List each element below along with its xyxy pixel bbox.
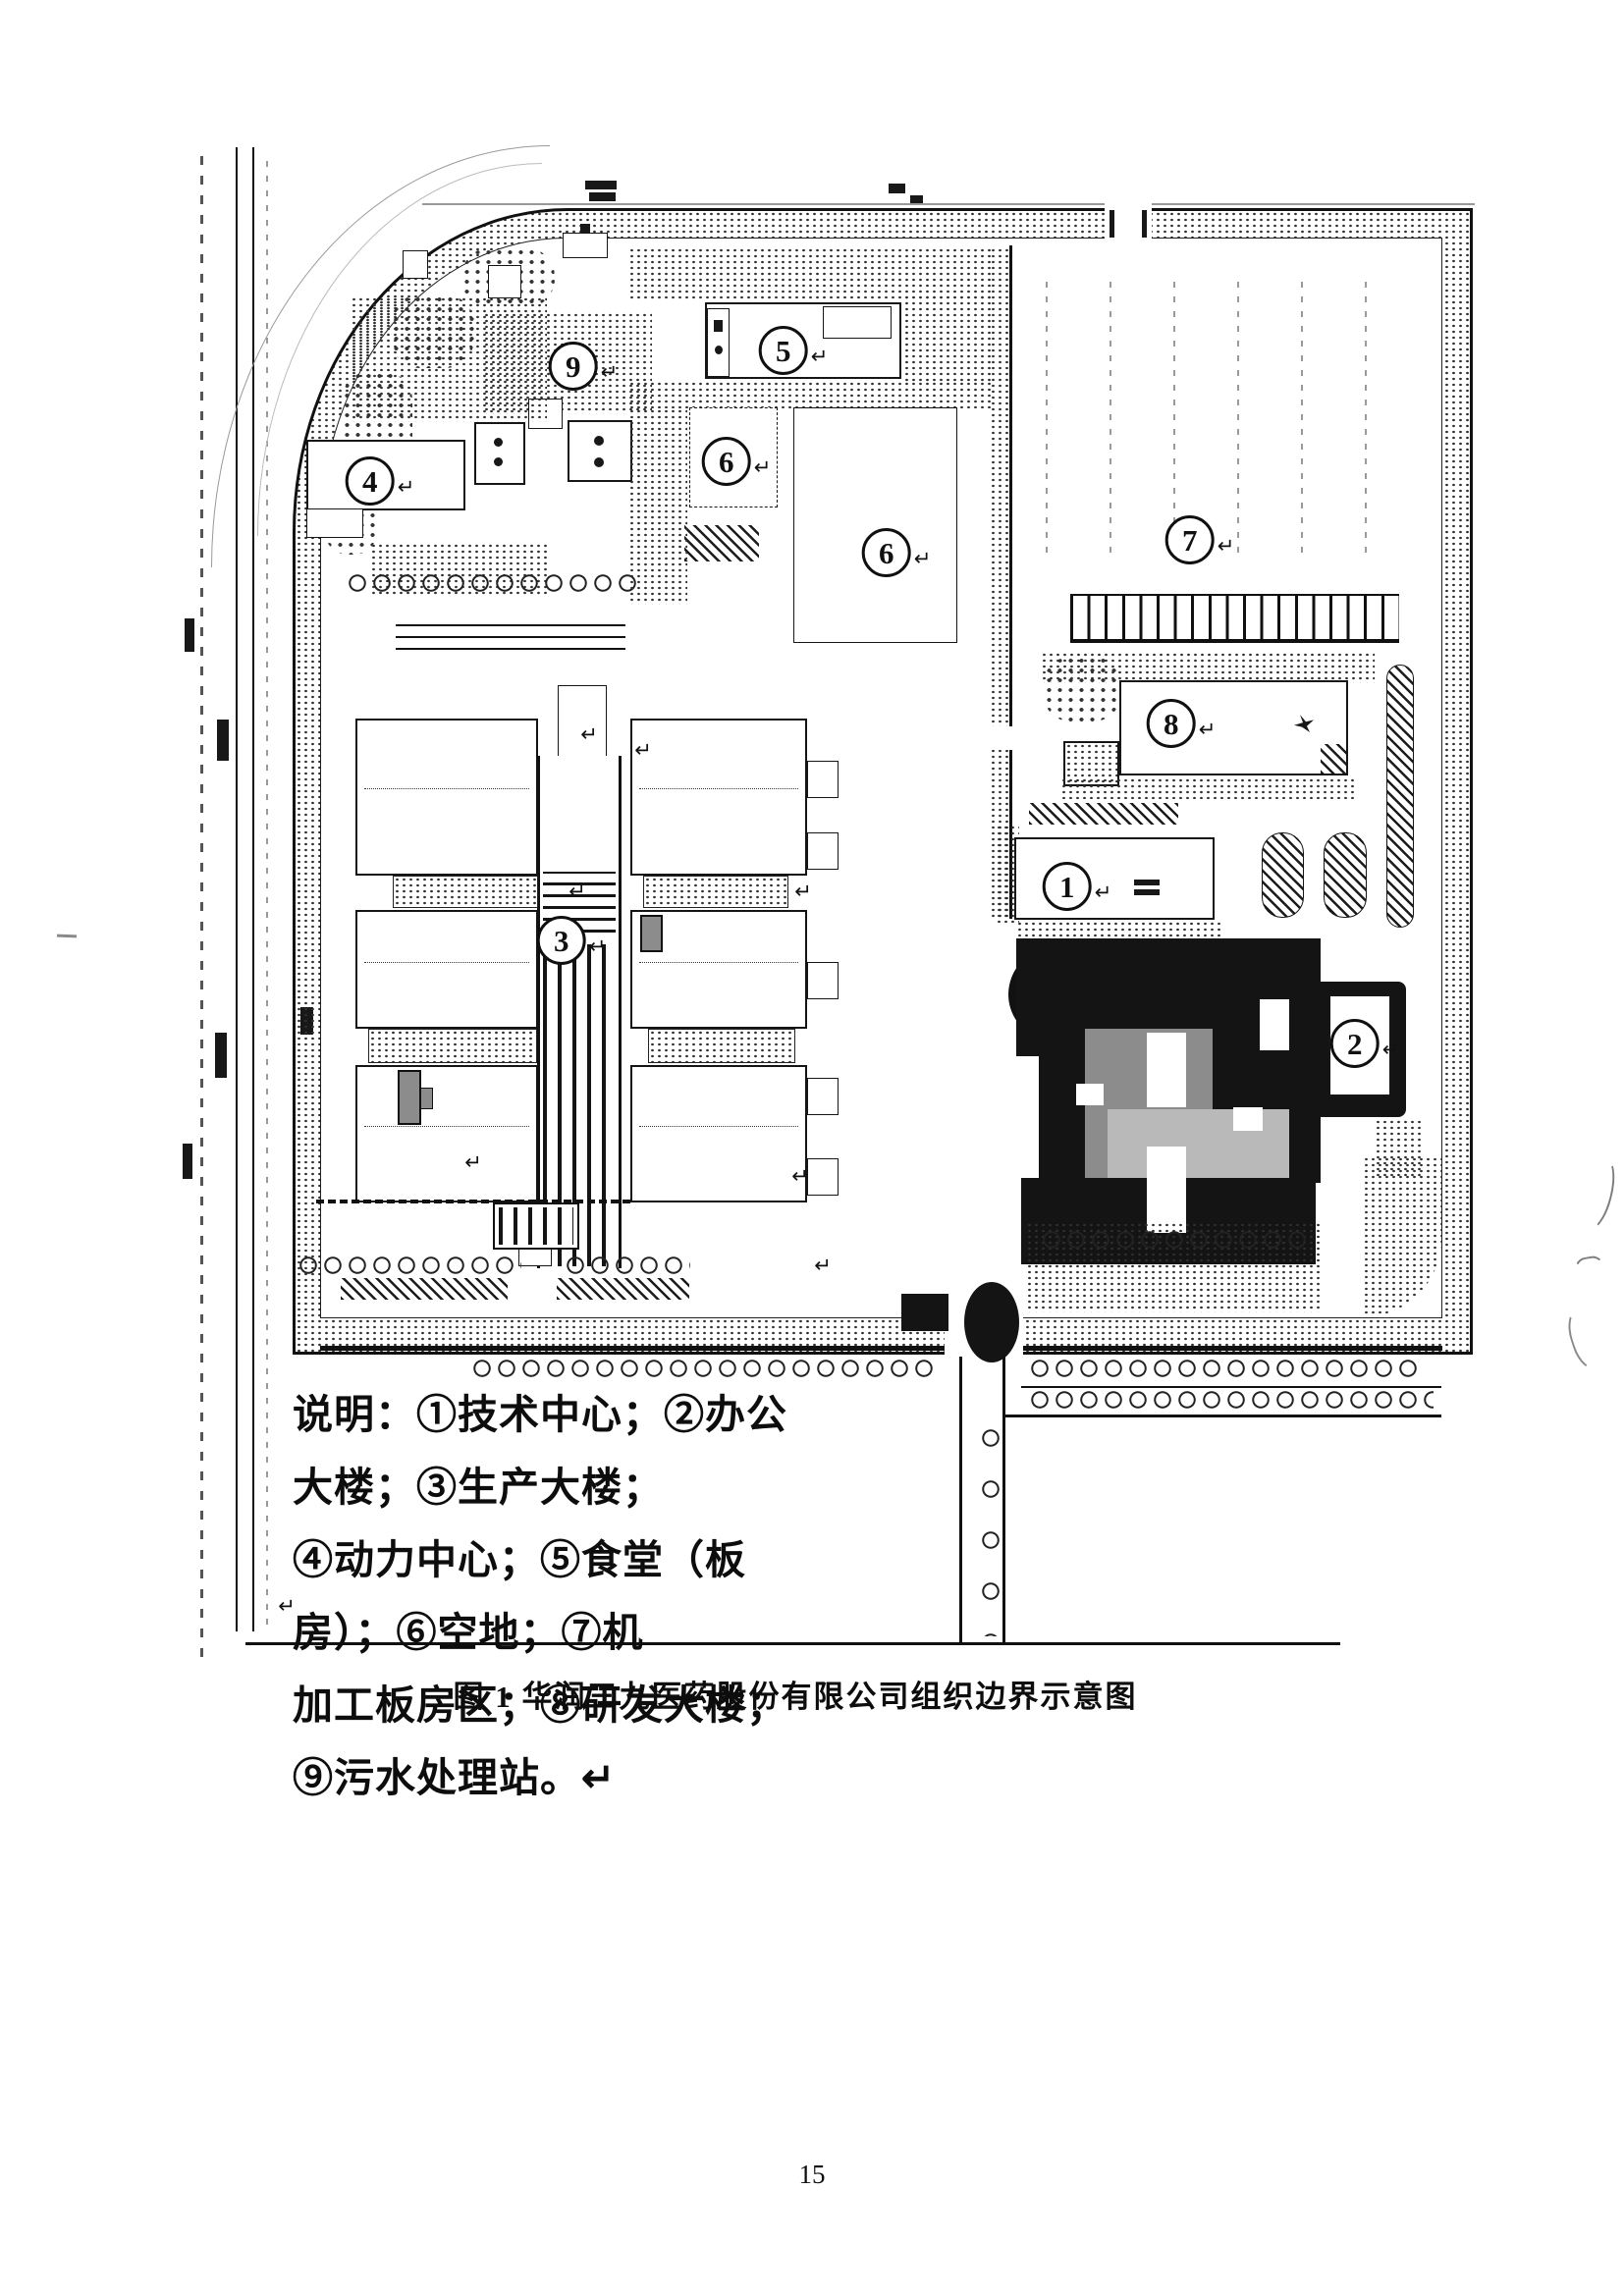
return-mark-icon: ↵	[464, 1150, 482, 1174]
marker-number: 5	[759, 326, 808, 375]
figure-legend: 说明：①技术中心；②办公大楼；③生产大楼； ④动力中心；⑤食堂（板房）；⑥空地；…	[293, 1378, 823, 1814]
map-marker-8: 8↵	[1147, 699, 1217, 748]
map-marker-1: 1↵	[1043, 862, 1112, 911]
marker-number: 9	[549, 342, 598, 391]
map-marker-6: 6↵	[862, 528, 932, 577]
return-mark-icon: ↵	[811, 345, 829, 368]
return-mark-icon: ↵	[601, 360, 619, 384]
marker-number: 2	[1330, 1019, 1380, 1068]
return-mark-icon: ↵	[794, 880, 812, 903]
map-marker-2: 2↵	[1330, 1019, 1400, 1068]
return-mark-icon: ↵	[754, 455, 772, 479]
return-mark-icon: ↵	[914, 547, 932, 570]
return-mark-icon: ↵	[580, 722, 598, 746]
return-mark-icon: ↵	[1199, 718, 1217, 741]
legend-line-1: 说明：①技术中心；②办公大楼；③生产大楼；	[293, 1378, 823, 1523]
return-mark-icon: ↵	[814, 1254, 832, 1277]
marker-number: 7	[1165, 515, 1215, 564]
scanned-document-page: 1↵2↵3↵4↵5↵6↵6↵7↵8↵9↵↵↵↵↵↵↵↵↵ 说明：①技术中心；②办…	[0, 0, 1624, 2296]
map-marker-9: 9↵	[549, 342, 619, 391]
return-mark-icon: ↵	[589, 934, 607, 958]
map-marker-5: 5↵	[759, 326, 829, 375]
map-marker-7: 7↵	[1165, 515, 1235, 564]
page-number: 15	[0, 2160, 1624, 2190]
marker-number: 1	[1043, 862, 1092, 911]
marker-layer: 1↵2↵3↵4↵5↵6↵6↵7↵8↵9↵↵↵↵↵↵↵↵↵	[0, 0, 1624, 2296]
return-mark-icon: ↵	[398, 475, 415, 499]
marker-number: 6	[862, 528, 911, 577]
return-mark-icon: ↵	[1382, 1038, 1400, 1061]
figure-caption: 图 1 华润三九医药股份有限公司组织边界示意图	[353, 1672, 1237, 1716]
marker-number: 4	[346, 456, 395, 506]
legend-line-2: ④动力中心；⑤食堂（板房）；⑥空地；⑦机	[293, 1523, 823, 1669]
return-mark-icon: ↵	[568, 880, 586, 903]
return-mark-icon: ↵	[791, 1164, 809, 1188]
return-mark-icon: ↵	[1095, 881, 1112, 904]
marker-number: 8	[1147, 699, 1196, 748]
map-marker-3: 3↵	[537, 916, 607, 965]
marker-number: 6	[702, 437, 751, 486]
return-mark-icon: ↵	[634, 738, 652, 762]
map-marker-6: 6↵	[702, 437, 772, 486]
return-mark-icon: ↵	[1218, 534, 1235, 558]
map-marker-4: 4↵	[346, 456, 415, 506]
marker-number: 3	[537, 916, 586, 965]
